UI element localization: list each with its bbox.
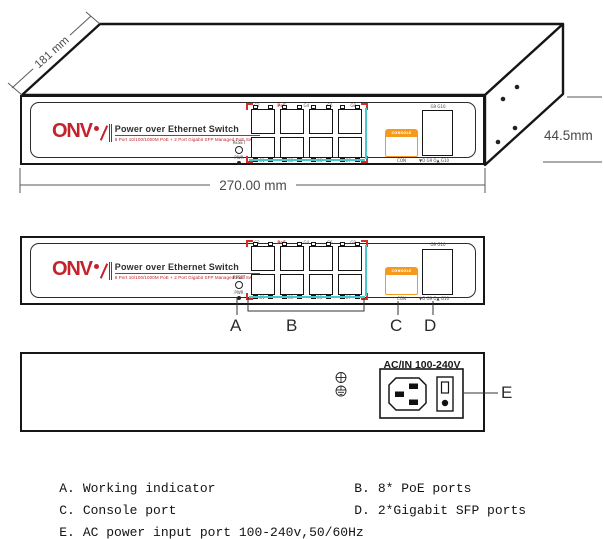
port-accent-line (249, 159, 365, 161)
rj45-port (338, 274, 362, 295)
rj45-row-bottom (251, 274, 362, 295)
rj45-port (251, 274, 275, 295)
poe-port-block: G2 PoE G4 G6 G8 G1 G3 G5 G7 (248, 104, 366, 161)
brand-text: ONV (52, 124, 92, 139)
sfp-cage (422, 249, 453, 295)
brand-logo: ONV Power over Ethernet Switch 8 Port 10… (52, 124, 260, 142)
dimension-depth (8, 12, 100, 95)
legend-key: E. (59, 525, 75, 539)
rj45-port (251, 246, 275, 271)
rj45-port (338, 109, 362, 134)
rj45-row-top (251, 109, 362, 134)
power-led (237, 296, 241, 300)
reset-button (235, 146, 243, 154)
reset-label: RESET (233, 275, 246, 280)
dimension-width (20, 168, 485, 193)
rj45-row-bottom (251, 137, 362, 158)
power-led (237, 161, 241, 165)
legend-item-e: E.AC power input port 100-240v,50/60Hz (28, 510, 364, 539)
rj45-port (338, 137, 362, 158)
console-sub-label: CON (385, 158, 418, 163)
rj45-port (309, 246, 333, 271)
sfp-label: G9 G10 (416, 242, 460, 247)
brand-dot-icon (94, 126, 99, 131)
port-accent-line (249, 296, 365, 298)
brand-dot-icon (94, 264, 99, 269)
reset-button (235, 281, 243, 289)
console-label: CONSOLE (385, 129, 418, 137)
logo-divider (100, 125, 108, 140)
rj45-port (309, 137, 333, 158)
port-label: G4 (304, 103, 310, 108)
chassis-right-face (485, 24, 563, 165)
callout-c: C (390, 317, 402, 334)
screw-hole-icon (496, 85, 520, 145)
rj45-port (251, 137, 275, 158)
rj45-port (338, 246, 362, 271)
rj45-port (309, 274, 333, 295)
sfp-label: G9 G10 (416, 104, 460, 109)
brand-logo: ONV Power over Ethernet Switch 8 Port 10… (52, 262, 260, 280)
console-port: CONSOLE (385, 129, 418, 157)
ac-input-label: AC/IN 100-240V (362, 359, 482, 371)
rj45-port (280, 246, 304, 271)
sfp-sub-label: ▼O G9 O▲ G10 (419, 158, 474, 163)
console-sub-label: CON (385, 296, 418, 301)
svg-text:181 mm: 181 mm (33, 34, 72, 71)
dimension-height-text: 44.5mm (544, 128, 593, 143)
legend-text: 2*Gigabit SFP ports (378, 503, 526, 518)
rear-panel-view: AC/IN 100-240V (20, 352, 485, 432)
rj45-port (280, 109, 304, 134)
switch-dimension-diagram: 181 mm 270.00 mm 44.5mm (0, 0, 604, 539)
front-panel-front-view: ONV Power over Ethernet Switch 8 Port 10… (20, 236, 485, 305)
console-port: CONSOLE (385, 267, 418, 295)
dimension-width-text: 270.00 mm (210, 176, 296, 193)
logo-divider (100, 263, 108, 278)
port-accent-line (365, 245, 367, 296)
rj45-port (280, 137, 304, 158)
dimension-height (543, 97, 602, 162)
sfp-cage (422, 110, 453, 156)
front-panel-3d-view: ONV Power over Ethernet Switch 8 Port 10… (20, 95, 485, 165)
callout-e: E (501, 384, 512, 401)
brand-text: ONV (52, 262, 92, 277)
rj45-port (280, 274, 304, 295)
legend-text: AC power input port 100-240v,50/60Hz (83, 525, 364, 539)
sfp-sub-label: ▼O G9 O▲ G10 (419, 296, 474, 301)
svg-text:270.00 mm: 270.00 mm (219, 178, 287, 193)
pwr-label: PWR (234, 155, 243, 160)
callout-d: D (424, 317, 436, 334)
port-accent-line (365, 108, 367, 159)
port-label: G4 (304, 240, 310, 245)
pwr-label: PWR (234, 290, 243, 295)
product-title: Power over Ethernet Switch (115, 124, 260, 136)
dimension-depth-text: 181 mm (28, 30, 75, 74)
callout-b: B (286, 317, 297, 334)
chassis-top-face (22, 24, 563, 95)
poe-port-block: G2 PoE G4 G6 G8 G1 G3 G5 G7 (248, 241, 366, 298)
console-label: CONSOLE (385, 267, 418, 275)
rj45-row-top (251, 246, 362, 271)
product-title: Power over Ethernet Switch (115, 262, 260, 274)
callout-a: A (230, 317, 241, 334)
reset-label: RESET (233, 140, 246, 145)
rj45-port (251, 109, 275, 134)
rj45-port (309, 109, 333, 134)
